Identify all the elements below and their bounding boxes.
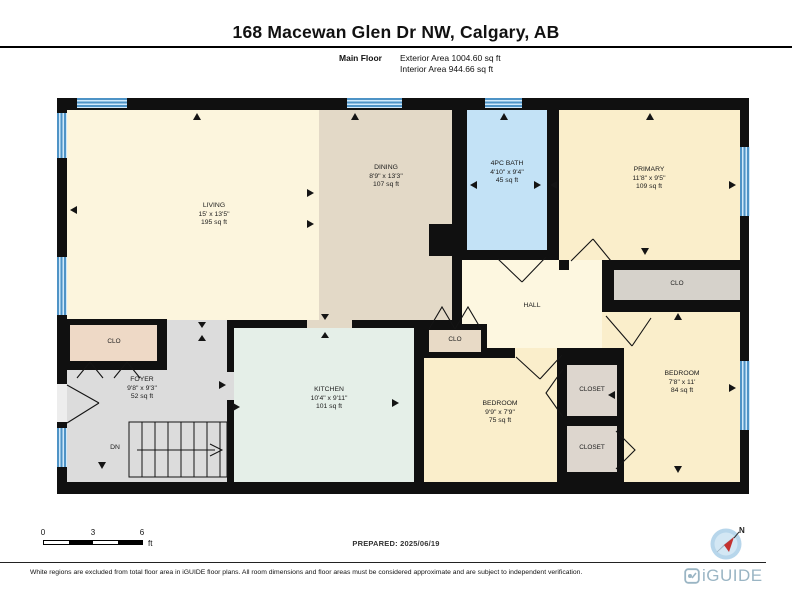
foyer-label: FOYER9'8" x 9'3"52 sq ft <box>92 376 192 402</box>
closet-bottom-label: CLOSET <box>565 444 619 453</box>
iguide-logo: iGUIDE <box>684 566 763 586</box>
opening-foyer-kitchen <box>217 372 234 400</box>
compass-north-label: N <box>739 526 745 535</box>
iguide-logo-icon <box>684 568 700 584</box>
kitchen-label: KITCHEN10'4" x 9'11"101 sq ft <box>279 386 379 412</box>
scale-bar <box>43 540 143 545</box>
window-left-living-upper <box>57 113 67 158</box>
window-left-living-lower <box>57 257 67 315</box>
window-right-bedroom <box>740 361 750 430</box>
bedroom-middle-label: BEDROOM9'9" x 7'9"75 sq ft <box>450 400 550 426</box>
floor-summary: Main Floor Exterior Area 1004.60 sq ft I… <box>0 53 792 75</box>
room-dining <box>319 110 452 320</box>
interior-area: Interior Area 944.66 sq ft <box>400 64 501 75</box>
room-bedroom-right <box>624 312 740 482</box>
opening-hall-bedroom-right <box>602 312 624 348</box>
page-title: 168 Macewan Glen Dr NW, Calgary, AB <box>0 22 792 43</box>
scale-tick-0: 0 <box>37 528 49 537</box>
stairs-dn-label: DN <box>102 444 128 453</box>
hall-label: HALL <box>492 302 572 311</box>
closet-top-label: CLOSET <box>565 386 619 395</box>
floor-plan-page: 168 Macewan Glen Dr NW, Calgary, AB Main… <box>0 0 792 612</box>
window-top-left <box>77 98 127 108</box>
primary-label: PRIMARY11'8" x 9'5"109 sq ft <box>599 166 699 192</box>
clo-primary-label: CLO <box>647 280 707 289</box>
title-divider <box>0 46 792 48</box>
scale-unit: ft <box>148 539 152 548</box>
window-top-dining <box>347 98 402 108</box>
exterior-area: Exterior Area 1004.60 sq ft <box>400 53 501 64</box>
floor-label: Main Floor <box>0 53 382 75</box>
iguide-logo-text: iGUIDE <box>702 566 763 586</box>
window-left-foyer <box>57 428 67 467</box>
scale-tick-6: 6 <box>136 528 148 537</box>
clo-foyer-label: CLO <box>85 338 143 347</box>
foyer-passage <box>167 320 227 370</box>
bath-label: 4PC BATH4'10" x 9'4"45 sq ft <box>467 160 547 186</box>
footer-divider <box>0 562 766 563</box>
window-right-primary <box>740 147 750 216</box>
front-door-opening <box>57 384 67 422</box>
floor-plan: LIVING15' x 13'5"195 sq ft DINING8'9" x … <box>57 98 749 494</box>
compass-icon: N <box>706 520 752 566</box>
wall-primary-bottom-left <box>559 260 569 270</box>
wall-notch <box>429 224 452 256</box>
dining-label: DINING8'9" x 13'3"107 sq ft <box>340 164 432 190</box>
opening-dining-kitchen <box>307 320 352 328</box>
clo-middle-label: CLO <box>429 336 481 345</box>
prepared-date: PREPARED: 2025/06/19 <box>296 539 496 548</box>
scale-tick-3: 3 <box>87 528 99 537</box>
window-top-bath <box>485 98 522 108</box>
living-label: LIVING15' x 13'5"195 sq ft <box>164 202 264 228</box>
wall-primary-bottom-right <box>605 260 740 270</box>
opening-hall-bedroom <box>515 348 557 358</box>
disclaimer-text: White regions are excluded from total fl… <box>30 569 730 576</box>
bedroom-right-label: BEDROOM7'8" x 11'84 sq ft <box>632 370 732 396</box>
